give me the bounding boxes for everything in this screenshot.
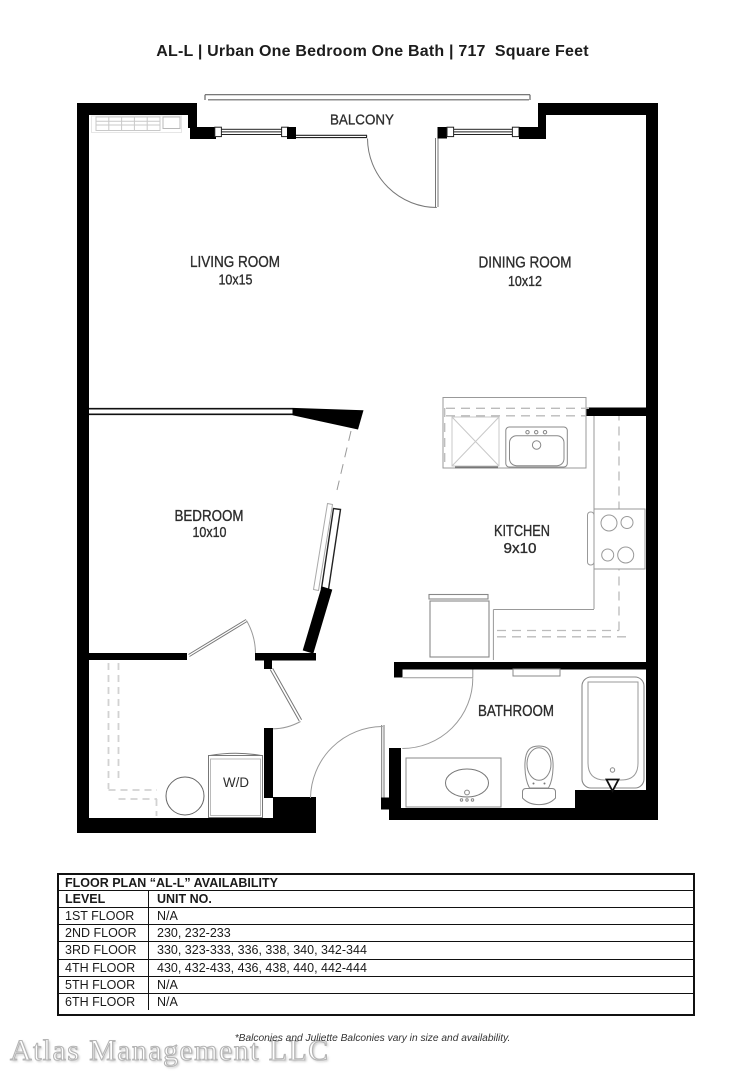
svg-text:DINING ROOM: DINING ROOM bbox=[479, 255, 572, 272]
svg-text:KITCHEN: KITCHEN bbox=[494, 523, 550, 540]
svg-text:BEDROOM: BEDROOM bbox=[175, 508, 244, 525]
svg-text:BATHROOM: BATHROOM bbox=[478, 703, 554, 720]
svg-text:9x10: 9x10 bbox=[504, 541, 537, 557]
svg-text:W/D: W/D bbox=[223, 774, 249, 790]
svg-text:10x15: 10x15 bbox=[219, 273, 253, 289]
svg-text:10x10: 10x10 bbox=[193, 525, 227, 541]
svg-text:BALCONY: BALCONY bbox=[330, 112, 394, 129]
svg-text:10x12: 10x12 bbox=[508, 274, 542, 290]
svg-text:LIVING ROOM: LIVING ROOM bbox=[190, 254, 280, 271]
